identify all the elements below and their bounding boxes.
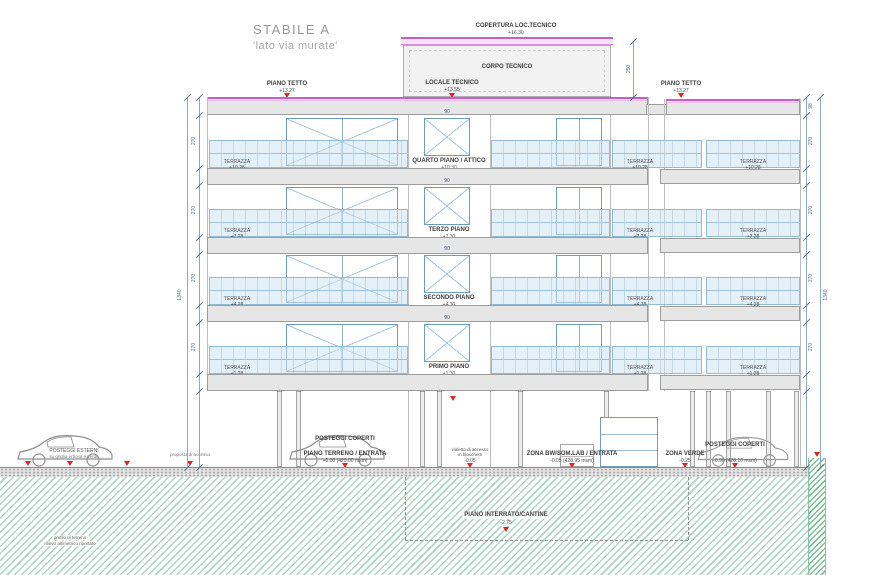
level-marker-icon	[450, 396, 456, 401]
dim-floor: 270	[808, 206, 814, 214]
dim-corpo: 250	[626, 65, 632, 73]
door-rail	[601, 434, 657, 435]
column	[518, 391, 523, 467]
dimension-line	[199, 97, 200, 467]
dimension-line	[806, 97, 807, 467]
dim-floor: 270	[191, 206, 197, 214]
floor-slab-wing	[660, 169, 800, 184]
elevation-drawing: STABILE A 'lato via murate' COPERTURA LO…	[0, 0, 895, 575]
copertura-roof-band	[401, 37, 613, 45]
ground-strip	[0, 467, 810, 477]
level-marker-icon	[67, 461, 73, 466]
wall-wing	[800, 99, 801, 467]
stair-window	[424, 187, 470, 225]
dim-floor: 270	[191, 343, 197, 351]
stair-window	[424, 255, 470, 293]
posteggi-coperti-label: POSTEGGI COPERTI	[315, 436, 375, 443]
window-dim: 90	[444, 178, 450, 184]
floor-slab	[207, 374, 648, 391]
dim-parapet: 98	[808, 103, 814, 109]
dim-floor: 270	[191, 137, 197, 145]
basement-floor-line	[405, 540, 688, 541]
copertura-elev: +16.30	[508, 30, 523, 36]
dimension-line	[187, 97, 188, 467]
terrace-glass-balustrade	[612, 346, 702, 374]
floor-slab-wing	[660, 306, 800, 321]
green-strip	[808, 458, 826, 575]
roof-slab-main	[207, 97, 648, 115]
terrain-note: profilo di terreno	[52, 535, 89, 540]
dimension-line	[633, 41, 634, 97]
terrace-glass-balustrade	[491, 346, 610, 374]
piano-interrato-label: PIANO INTERRATO/CANTINE	[462, 512, 549, 519]
dim-floor: 270	[808, 274, 814, 282]
window-dim: 90	[444, 246, 450, 252]
level-marker-icon	[503, 527, 509, 532]
level-marker-icon	[25, 461, 31, 466]
floor-slab	[207, 305, 648, 322]
column	[437, 391, 442, 467]
terrace-glass-balustrade	[612, 209, 702, 237]
dim-floor: 270	[191, 274, 197, 282]
piano-interrato-elev: -2.75	[500, 520, 511, 526]
level-marker-icon	[124, 461, 130, 466]
roof-slab-wing	[666, 99, 800, 115]
column	[794, 391, 799, 467]
terrace-glass-balustrade	[491, 140, 610, 168]
basement-outline	[688, 477, 689, 540]
drawing-subtitle: 'lato via murate'	[253, 40, 338, 52]
column	[277, 391, 282, 467]
dim-overall: 1340	[177, 289, 183, 300]
dim-overall: 1340	[823, 289, 829, 300]
terrace-glass-balustrade	[491, 209, 610, 237]
accesso-note: proposta di accesso	[170, 452, 210, 457]
terrace-glass-balustrade	[491, 277, 610, 305]
terrain-note2: rilievo altimetrico riportato	[42, 541, 97, 546]
terrace-glass-balustrade	[612, 277, 702, 305]
drawing-title: STABILE A	[253, 22, 331, 37]
column	[420, 391, 425, 467]
stair-window	[424, 324, 470, 362]
dimension-line	[820, 97, 821, 467]
floor-slab-wing	[660, 375, 800, 390]
basement-outline	[405, 477, 406, 540]
posteggi-coperti-right-label: POSTEGGI COPERTI	[705, 442, 765, 449]
vialetto-label2: in blocchetti	[458, 452, 482, 457]
dim-floor: 270	[808, 137, 814, 145]
floor-slab	[207, 168, 648, 185]
entrance-door	[600, 417, 658, 467]
window-dim: 90	[444, 109, 450, 115]
corpo-tecnico-label: CORPO TECNICO	[482, 64, 533, 71]
level-marker-icon	[678, 93, 684, 98]
terrace-glass-balustrade	[612, 140, 702, 168]
floor-slab	[207, 237, 648, 254]
posteggi-esterni-sub: su griglia erbosa e verde	[49, 454, 98, 459]
dim-floor: 270	[808, 343, 814, 351]
floor-slab-wing	[660, 238, 800, 253]
stair-window	[424, 118, 470, 156]
window-dim: 90	[444, 315, 450, 321]
